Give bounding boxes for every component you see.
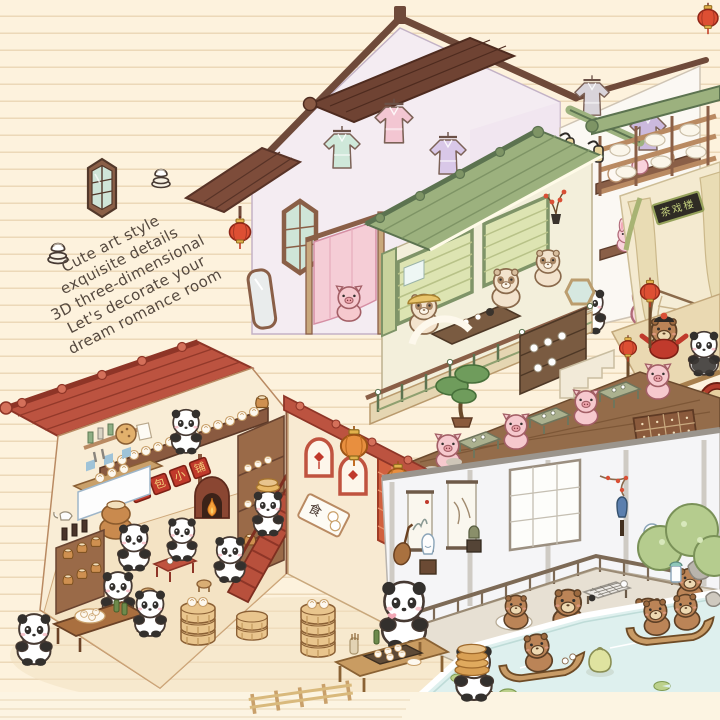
wine-bottle bbox=[374, 630, 379, 644]
pig-figure bbox=[336, 286, 361, 321]
bun-oven bbox=[195, 477, 229, 518]
pig-figure bbox=[573, 390, 598, 425]
artwork-canvas: Cute art style exquisite details 3D thre… bbox=[0, 0, 720, 720]
room-opera-stage: 茶戏楼 bbox=[612, 3, 720, 417]
lily-pad-icon bbox=[654, 682, 670, 691]
cream-capybara-figure bbox=[492, 269, 519, 308]
red-lantern-icon bbox=[698, 3, 718, 34]
red-lantern-icon bbox=[230, 216, 251, 249]
arched-window bbox=[306, 439, 332, 476]
wall-lattice-window bbox=[510, 460, 580, 550]
lattice-panel bbox=[382, 248, 396, 336]
floor-planks bbox=[0, 692, 720, 720]
steamer-stack bbox=[237, 611, 268, 640]
floating-decorations: Cute art style exquisite details 3D thre… bbox=[31, 159, 225, 358]
dish-stack-icon bbox=[152, 170, 170, 188]
steamer-tower bbox=[301, 600, 335, 658]
pig-figure bbox=[503, 414, 528, 449]
panda-on-stairs bbox=[252, 479, 283, 536]
cream-capybara-figure bbox=[535, 250, 561, 286]
chopsticks-cup bbox=[350, 638, 358, 654]
stone-lantern bbox=[670, 562, 682, 582]
pig-figure bbox=[645, 364, 670, 399]
hexagon-mirror bbox=[566, 280, 594, 304]
steamer-stack bbox=[181, 598, 215, 646]
tagline: Cute art style exquisite details 3D thre… bbox=[31, 197, 225, 358]
illustration: Cute art style exquisite details 3D thre… bbox=[0, 0, 720, 720]
floating-window-icon bbox=[88, 159, 116, 217]
